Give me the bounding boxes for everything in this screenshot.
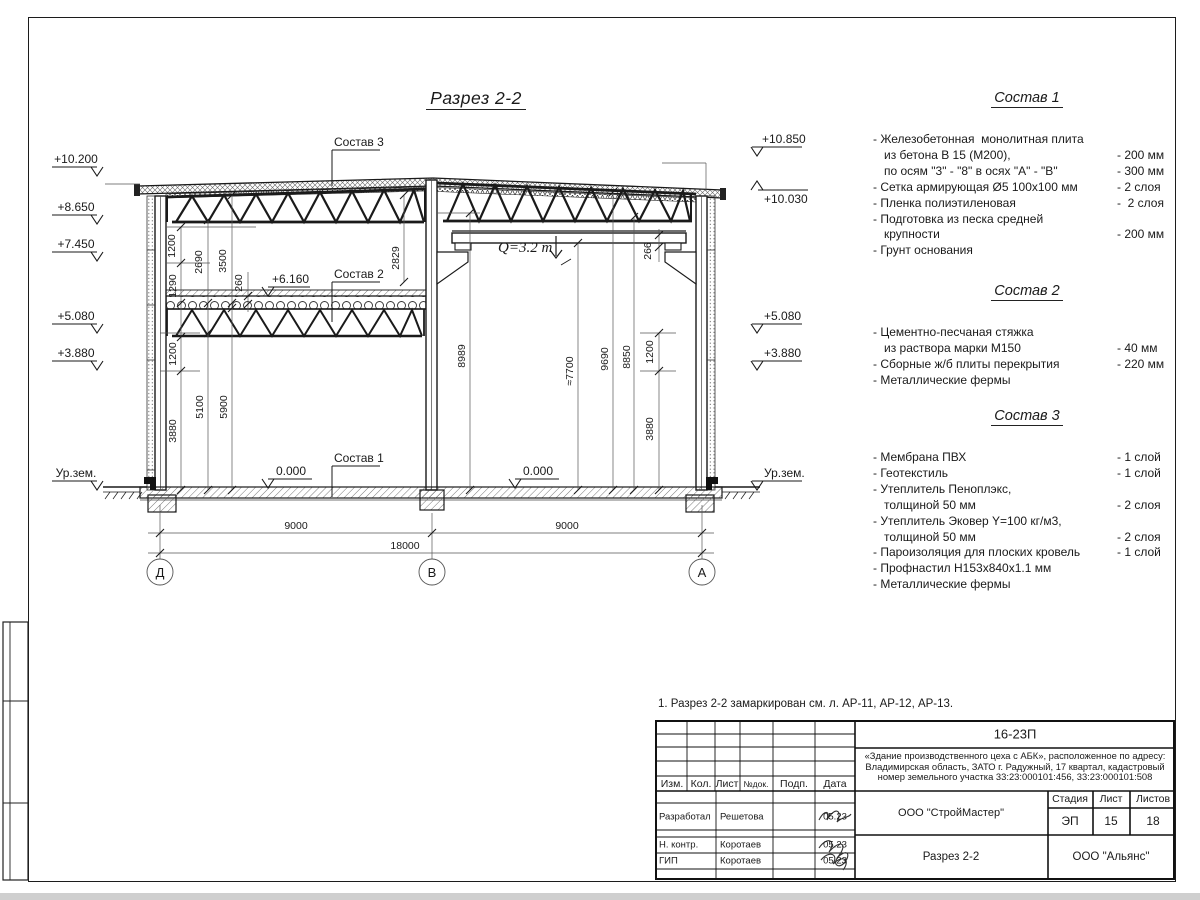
- dim-3880-left: 3880: [167, 419, 179, 443]
- left-wall: [147, 196, 166, 490]
- tb-date-ncontr: 05.23: [823, 840, 847, 851]
- tb-col-ndok: №док.: [744, 779, 769, 789]
- composition-list-1: Состав 1 - Железобетонная монолитная пли…: [873, 90, 1181, 259]
- level-6160-label: +6.160: [272, 272, 309, 286]
- elev-8650: +8.650: [57, 200, 94, 214]
- dim-1200-right: 1200: [644, 340, 656, 364]
- dim-1290: 1290: [167, 274, 179, 298]
- list-item: - Пароизоляция для плоских кровель- 1 сл…: [873, 545, 1181, 561]
- tb-org: ООО "СтройМастер": [898, 807, 1004, 819]
- dim-1200-lower: 1200: [167, 342, 179, 366]
- leader-sostav-1: Состав 1: [334, 451, 384, 465]
- list-item: - Подготовка из песка средней: [873, 212, 1181, 228]
- dim-8989: 8989: [456, 344, 468, 368]
- tb-col-izm: Изм.: [661, 778, 684, 790]
- dim-5900: 5900: [218, 395, 230, 419]
- side-stamp: [0, 0, 40, 900]
- dim-3500: 3500: [217, 249, 229, 273]
- ground-label-left: Ур.зем.: [56, 466, 97, 480]
- tb-sheet-value: 15: [1104, 814, 1117, 828]
- zero-left-label: 0.000: [276, 464, 306, 478]
- crane-capacity-label: Q=3.2 т: [498, 240, 552, 256]
- elev-10030: +10.030: [764, 192, 808, 206]
- elev-3880-right: +3.880: [764, 346, 801, 360]
- leader-sostav-2: Состав 2: [334, 267, 384, 281]
- mezzanine-truss: [166, 309, 426, 336]
- list-item: по осям "3" - "8" в осях "А" - "В"- 300 …: [873, 164, 1181, 180]
- list-item: - Пленка полиэтиленовая- 2 слоя: [873, 196, 1181, 212]
- leader-sostav-3: Состав 3: [334, 135, 384, 149]
- list-item: - Сборные ж/б плиты перекрытия- 220 мм: [873, 357, 1181, 373]
- vertical-dimensions: 1200 2690 3500 1290 260 2829 1200 3880 5…: [166, 234, 656, 443]
- tb-name-gip: Коротаев: [720, 856, 761, 867]
- list-item: из раствора марки М150- 40 мм: [873, 341, 1181, 357]
- bottom-dimensions: 9000 9000 18000: [148, 505, 714, 559]
- tb-col-podp: Подп.: [780, 778, 808, 790]
- list-item: - Профнастил Н153х840х1.1 мм: [873, 561, 1181, 577]
- elev-5080-right: +5.080: [764, 309, 801, 323]
- tb-role-developer: Разработал: [659, 812, 711, 823]
- dim-2829: 2829: [390, 246, 402, 270]
- axis-a: А: [698, 565, 707, 580]
- elev-5080-left: +5.080: [57, 309, 94, 323]
- dim-3880-right: 3880: [644, 417, 656, 441]
- composition-list-3: Состав 3 - Мембрана ПВХ- 1 слой - Геотек…: [873, 408, 1181, 593]
- tb-stage-label: Стадия: [1052, 793, 1088, 805]
- tb-date-gip: 05.23: [823, 856, 847, 867]
- tb-doc-name: Разрез 2-2: [923, 851, 979, 863]
- dim-7700: ≈7700: [564, 356, 576, 385]
- dim-9000-left: 9000: [284, 520, 308, 532]
- list-item: толщиной 50 мм- 2 слоя: [873, 498, 1181, 514]
- title-block: Изм. Кол. Лист №док. Подп. Дата Разработ…: [655, 720, 1175, 880]
- tb-sheets-value: 18: [1146, 814, 1159, 828]
- composition-list-2: Состав 2 - Цементно-песчаная стяжка из р…: [873, 283, 1181, 389]
- dim-5100: 5100: [194, 395, 206, 419]
- tb-sheet-label: Лист: [1100, 793, 1123, 805]
- crane-beam: [437, 231, 696, 284]
- axis-bubbles: Д В А: [147, 559, 715, 585]
- tb-name-developer: Решетова: [720, 812, 764, 823]
- tb-stage-value: ЭП: [1061, 814, 1078, 828]
- elev-7450: +7.450: [57, 237, 94, 251]
- list-item: - Сетка армирующая Ø5 100х100 мм- 2 слоя: [873, 180, 1181, 196]
- sheet-note: 1. Разрез 2-2 замаркирован см. л. АР-11,…: [658, 698, 953, 710]
- dim-9690: 9690: [599, 347, 611, 371]
- dim-18000: 18000: [390, 540, 419, 552]
- list-item: - Металлические фермы: [873, 373, 1181, 389]
- tb-role-gip: ГИП: [659, 856, 678, 867]
- zero-level-marks: [262, 287, 559, 488]
- list-item: толщиной 50 мм- 2 слоя: [873, 530, 1181, 546]
- elevation-marks-left: [52, 167, 103, 490]
- tb-date-developer: 05.23: [823, 812, 847, 823]
- tb-col-data: Дата: [823, 778, 846, 790]
- list-item: - Утеплитель Пеноплэкс,: [873, 482, 1181, 498]
- tb-col-kol: Кол.: [691, 778, 712, 790]
- list-item: - Утеплитель Эковер Y=100 кг/м3,: [873, 514, 1181, 530]
- drawing-sheet: Разрез 2-2: [0, 0, 1200, 900]
- composition-3-title: Состав 3: [873, 408, 1181, 424]
- tb-role-ncontr: Н. контр.: [659, 840, 698, 851]
- list-item: - Грунт основания: [873, 243, 1181, 259]
- tb-col-list: Лист: [716, 778, 739, 790]
- elevation-labels-left: +10.200 +8.650 +7.450 +5.080 +3.880 Ур.з…: [54, 152, 98, 480]
- dim-9000-right: 9000: [555, 520, 579, 532]
- tb-name-ncontr: Коротаев: [720, 840, 761, 851]
- dim-1200-upper: 1200: [166, 234, 178, 258]
- dim-8850: 8850: [621, 345, 633, 369]
- dim-266: 266: [642, 242, 654, 260]
- axis-v: В: [428, 565, 437, 580]
- list-item: - Железобетонная монолитная плита: [873, 132, 1181, 148]
- composition-2-title: Состав 2: [873, 283, 1181, 299]
- tb-project-code: 16-23П: [994, 727, 1037, 742]
- tb-customer: ООО "Альянс": [1073, 851, 1150, 863]
- composition-1-title: Состав 1: [873, 90, 1181, 106]
- elev-3880-left: +3.880: [57, 346, 94, 360]
- list-item: крупности- 200 мм: [873, 227, 1181, 243]
- list-item: - Цементно-песчаная стяжка: [873, 325, 1181, 341]
- axis-d: Д: [156, 565, 165, 580]
- composition-leaders: [332, 150, 380, 497]
- tb-sheets-label: Листов: [1136, 793, 1170, 805]
- list-item: - Металлические фермы: [873, 577, 1181, 593]
- dim-260: 260: [233, 274, 245, 292]
- elev-10850: +10.850: [762, 132, 806, 146]
- tb-object-description: «Здание производственного цеха с АБК», р…: [863, 751, 1167, 783]
- list-item: - Геотекстиль- 1 слой: [873, 466, 1181, 482]
- dim-2690: 2690: [193, 250, 205, 274]
- middle-column: [426, 180, 437, 490]
- elevation-labels-right: +10.850 +10.030 +5.080 +3.880 Ур.зем.: [762, 132, 808, 480]
- ground-label-right: Ур.зем.: [764, 466, 805, 480]
- elev-10200: +10.200: [54, 152, 98, 166]
- zero-right-label: 0.000: [523, 464, 553, 478]
- list-item: из бетона В 15 (М200),- 200 мм: [873, 148, 1181, 164]
- list-item: - Мембрана ПВХ- 1 слой: [873, 450, 1181, 466]
- right-wall: [696, 196, 715, 490]
